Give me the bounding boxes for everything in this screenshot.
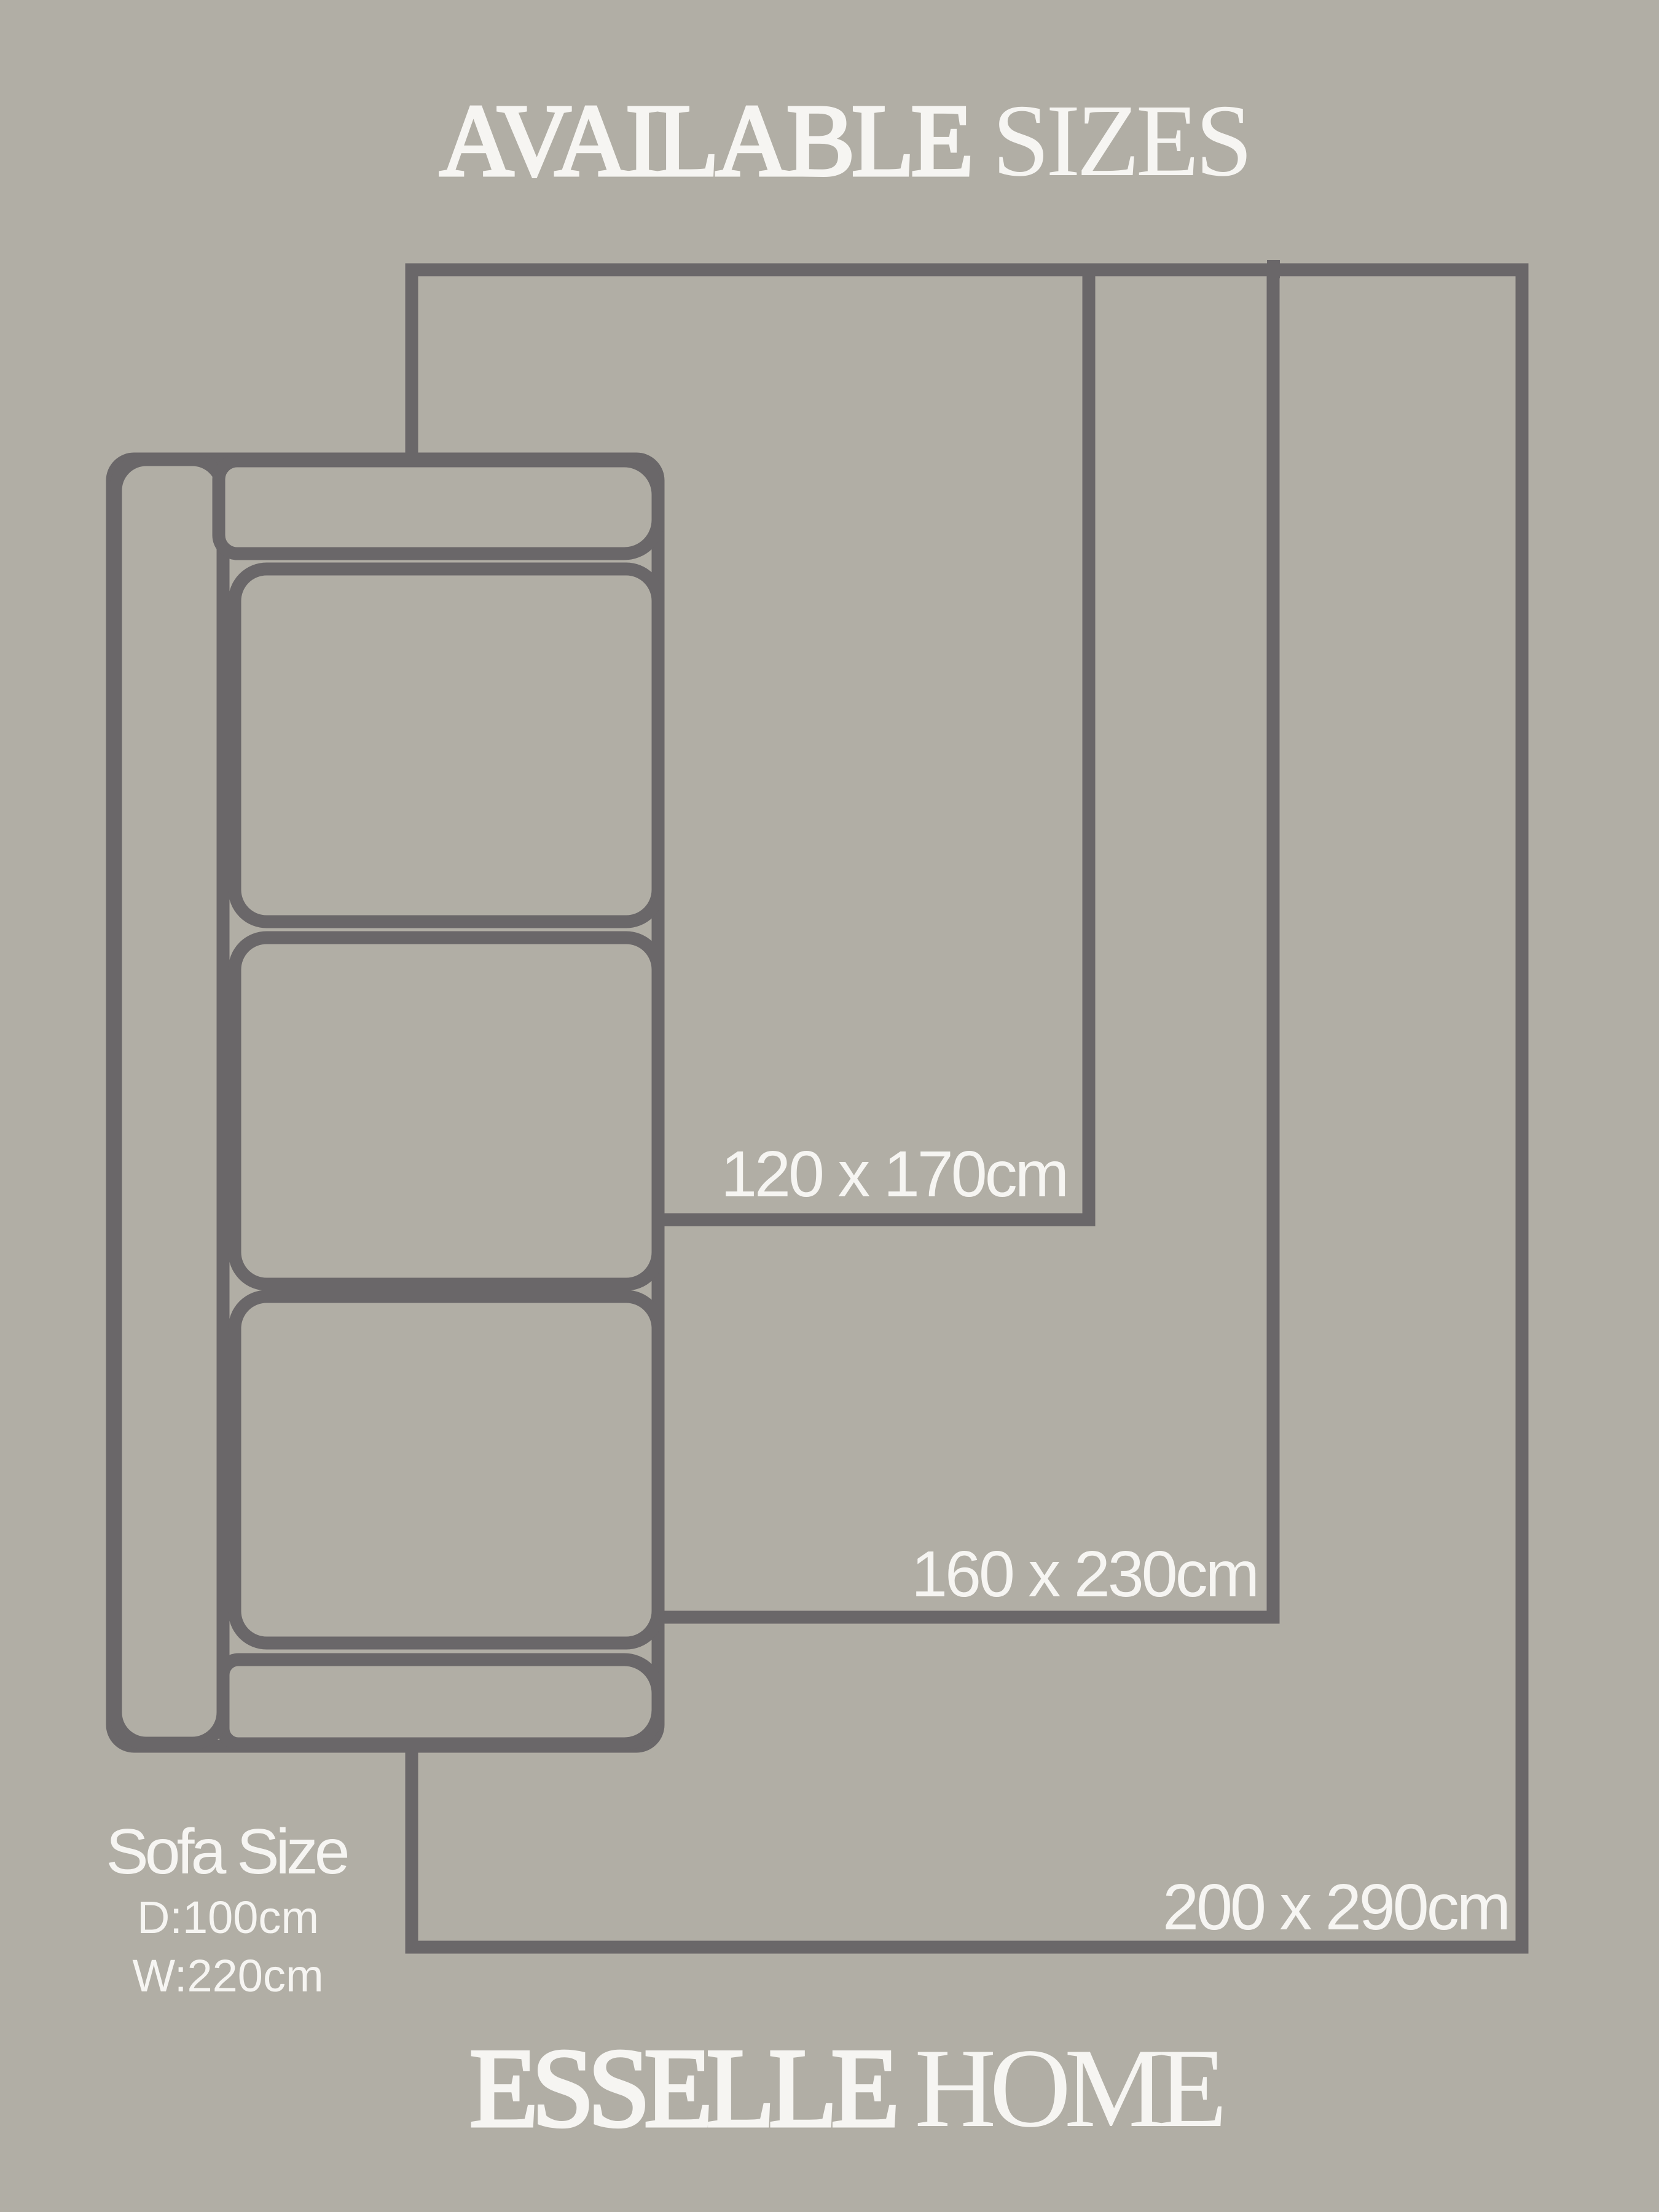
svg-text:120 x 170cm: 120 x 170cm xyxy=(721,1138,1067,1210)
svg-text:ESSELLE HOME: ESSELLE HOME xyxy=(469,2025,1222,2151)
svg-text:D:100cm: D:100cm xyxy=(137,1892,319,1943)
svg-text:W:220cm: W:220cm xyxy=(132,1950,323,2001)
svg-text:200 x 290cm: 200 x 290cm xyxy=(1163,1871,1508,1943)
svg-text:AVAILABLE SIZES: AVAILABLE SIZES xyxy=(439,84,1249,198)
svg-text:Sofa Size: Sofa Size xyxy=(106,1816,347,1888)
svg-text:160 x 230cm: 160 x 230cm xyxy=(911,1538,1257,1610)
